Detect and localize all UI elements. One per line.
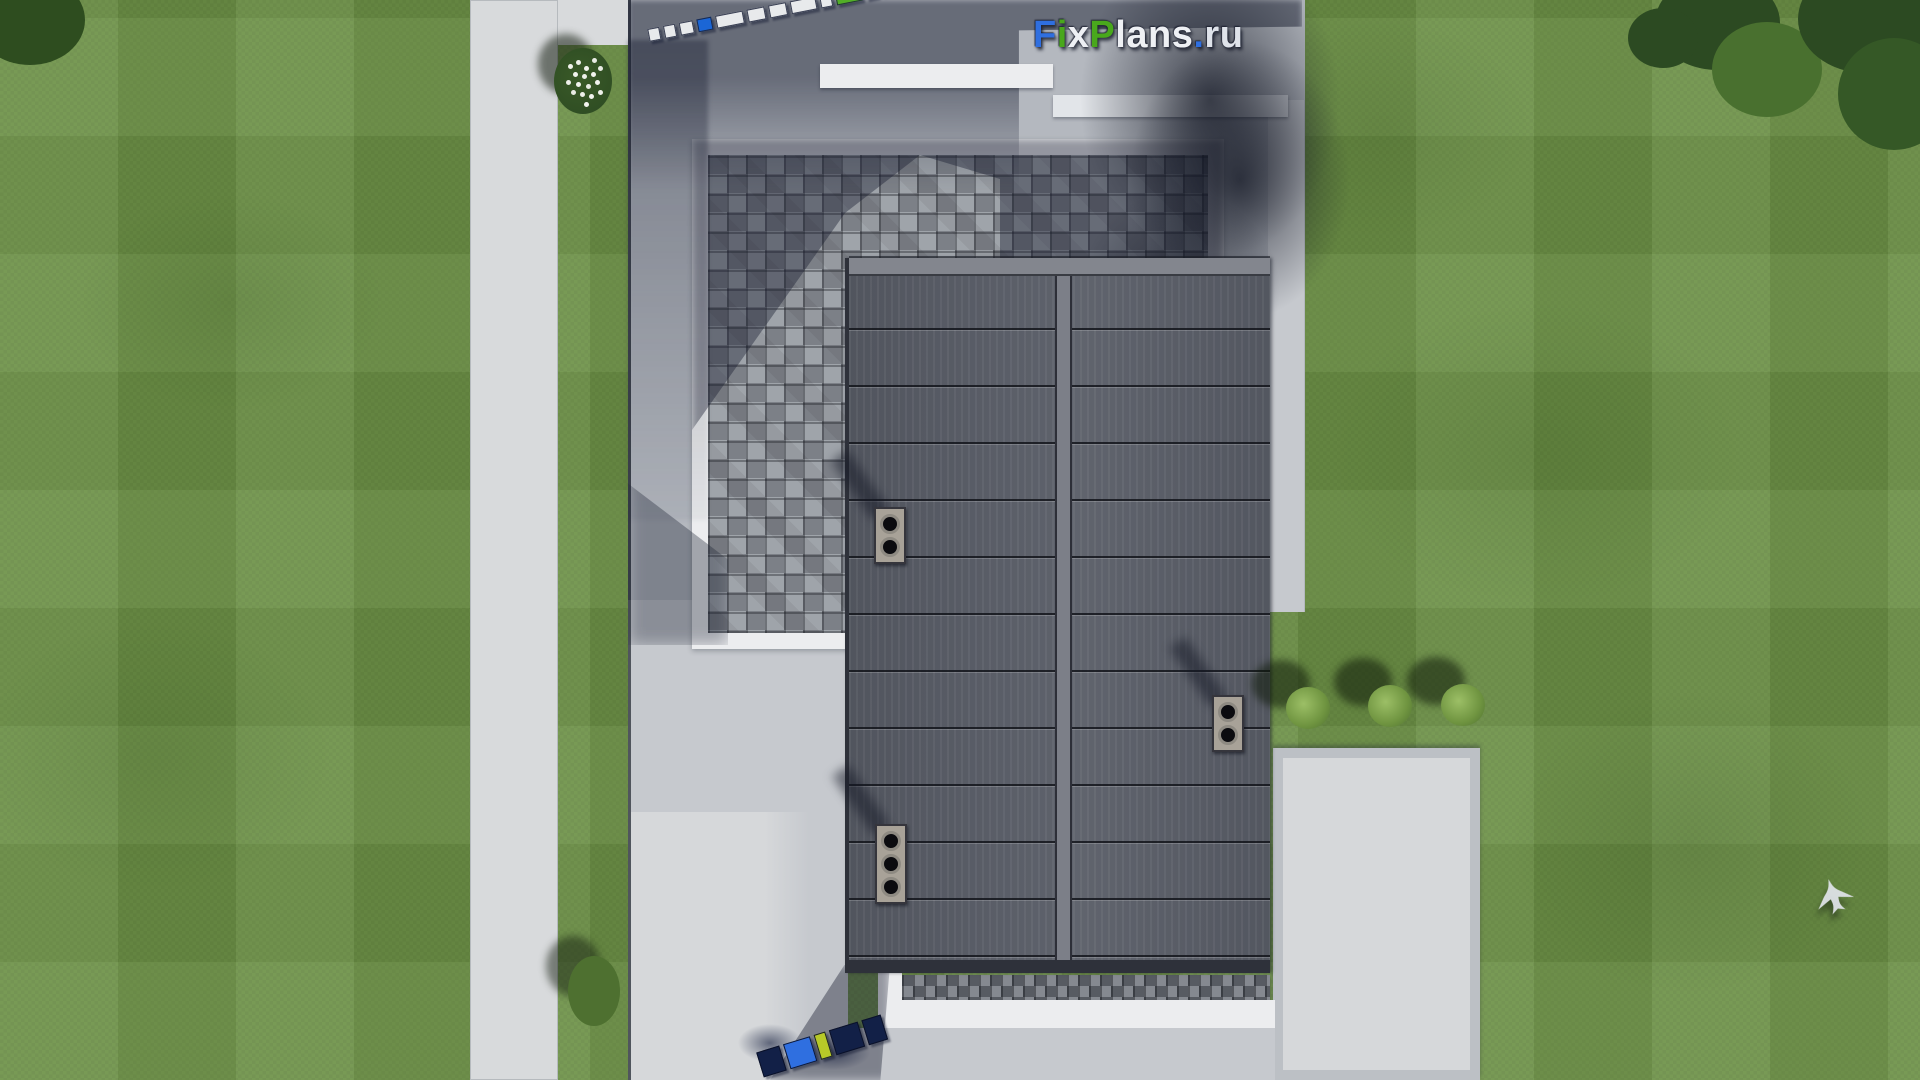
bush (1286, 687, 1330, 729)
logo-letter: n (1148, 14, 1172, 56)
bottom-white-trim (878, 1000, 1275, 1028)
chimney-vent (880, 514, 900, 534)
logo-letter: i (1057, 14, 1068, 56)
logo-letter: u (1220, 14, 1244, 56)
bush (1368, 685, 1412, 727)
chimney-vent (1218, 702, 1238, 722)
roof-ridge (1055, 258, 1072, 973)
bottom-shingle-strip (902, 975, 1270, 1002)
logo-letter: a (1126, 14, 1148, 56)
chimney-vent-plate (874, 507, 906, 564)
roof-top-trim (849, 258, 1270, 276)
right-stone-strip (1268, 100, 1304, 612)
bottom-pavement (845, 1028, 1275, 1080)
scale-bar-segment (663, 24, 677, 39)
logo-letter: l (1115, 14, 1126, 56)
bush (568, 956, 620, 1026)
chimney-vent (880, 537, 900, 557)
logo-letter: r (1204, 14, 1219, 56)
parapet-wall-top (820, 64, 1053, 88)
bush (1441, 684, 1485, 726)
logo-letter: s (1172, 14, 1194, 56)
parapet-wall-right (1053, 95, 1288, 117)
logo-letter: x (1068, 14, 1090, 56)
tree-canopy (1628, 8, 1698, 68)
tree-blossoms (568, 64, 573, 69)
house-roof (845, 258, 1270, 973)
roof-bottom-trim (849, 960, 1270, 973)
logo-letter: P (1089, 14, 1115, 56)
chimney-vent (881, 831, 901, 851)
site-plan-render: FixPlans.ru (0, 0, 1920, 1080)
chimney-vent (1218, 725, 1238, 745)
flowering-tree (554, 48, 612, 114)
chimney-vent (881, 854, 901, 874)
chimney-vent-plate (875, 824, 907, 904)
watermark-logo: FixPlans.ru (1033, 14, 1243, 57)
logo-letter: . (1193, 14, 1204, 56)
right-concrete-slab (1273, 748, 1480, 1080)
sidewalk-path (470, 0, 558, 1080)
logo-letter: F (1033, 14, 1057, 56)
scale-bar-segment (647, 27, 661, 42)
chimney-vent (881, 877, 901, 897)
scale-bar-segment (679, 20, 695, 35)
chimney-vent-plate (1212, 695, 1244, 752)
